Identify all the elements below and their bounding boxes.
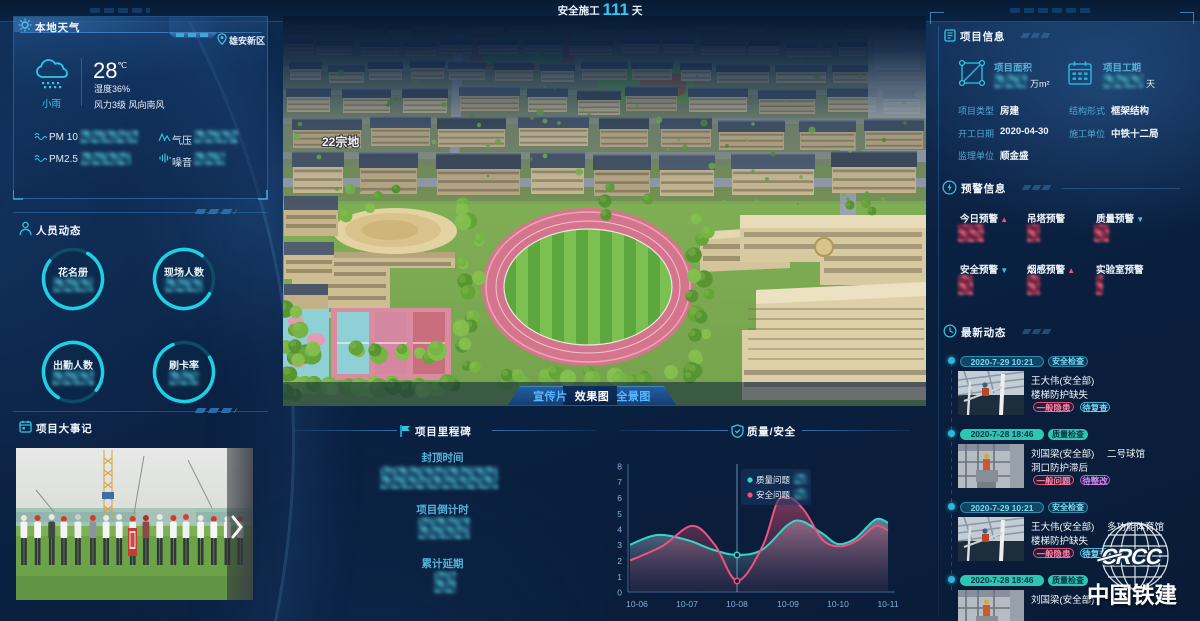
svg-text:10-11: 10-11 bbox=[877, 599, 898, 609]
svg-text:0: 0 bbox=[617, 588, 622, 598]
svg-text:10-09: 10-09 bbox=[777, 599, 799, 609]
svg-text:2: 2 bbox=[617, 556, 622, 566]
svg-text:3: 3 bbox=[617, 540, 622, 550]
svg-text:8: 8 bbox=[617, 462, 622, 472]
svg-text:10-08: 10-08 bbox=[726, 599, 748, 609]
svg-text:1: 1 bbox=[617, 572, 622, 582]
svg-text:22宗地: 22宗地 bbox=[322, 134, 359, 149]
svg-text:10-07: 10-07 bbox=[676, 599, 698, 609]
svg-text:5: 5 bbox=[617, 509, 622, 519]
svg-text:10-06: 10-06 bbox=[626, 599, 648, 609]
svg-text:10-10: 10-10 bbox=[827, 599, 849, 609]
svg-text:安全问题: 安全问题 bbox=[756, 490, 791, 500]
svg-text:4: 4 bbox=[617, 525, 622, 535]
svg-text:质量问题: 质量问题 bbox=[756, 475, 791, 485]
svg-text:7: 7 bbox=[617, 477, 622, 487]
svg-text:6: 6 bbox=[617, 493, 622, 503]
